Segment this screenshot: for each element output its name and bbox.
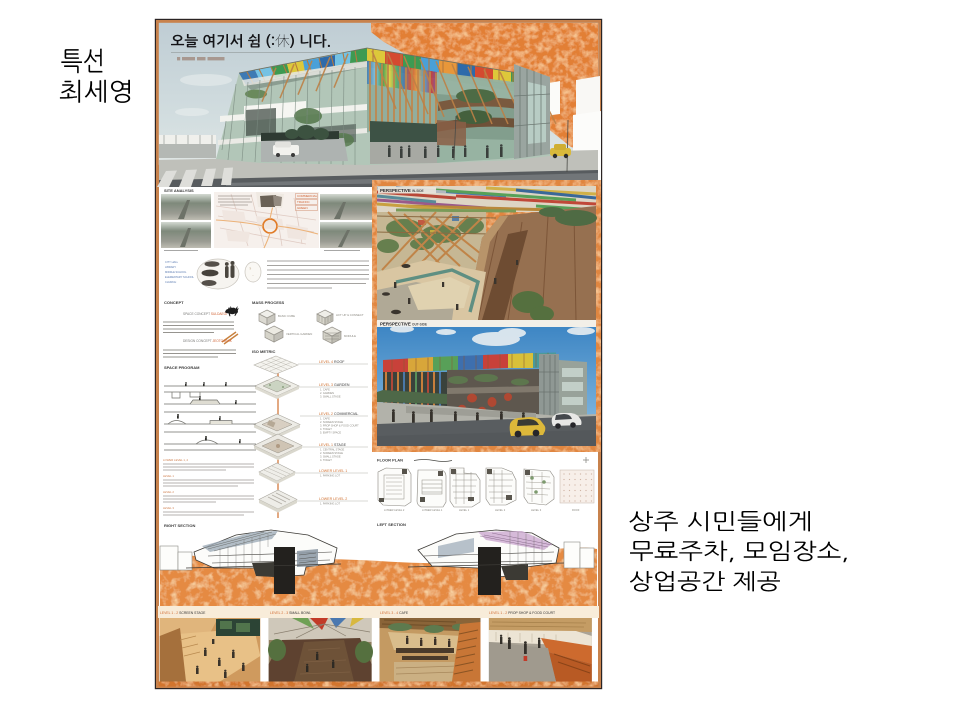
svg-text:4. TOILET: 4. TOILET	[320, 427, 332, 431]
svg-text:LEVEL 3: LEVEL 3	[163, 506, 174, 510]
svg-text:LEVEL 3: LEVEL 3	[531, 508, 542, 512]
svg-text:3. SMALL STAGE: 3. SMALL STAGE	[320, 395, 341, 399]
svg-text:2. GARDEN: 2. GARDEN	[320, 391, 334, 395]
svg-text:COMMERCIAL: COMMERCIAL	[297, 194, 318, 198]
svg-text:SPACE PROGRAM: SPACE PROGRAM	[164, 365, 200, 370]
svg-text:DESIGN CONCEPT JEOTGARAK: DESIGN CONCEPT JEOTGARAK	[183, 339, 233, 343]
svg-text:MIDDLE SCHOOL: MIDDLE SCHOOL	[165, 270, 187, 274]
svg-text:..: ..	[252, 272, 254, 277]
svg-text:LEVEL 2 - 3 SMALL BOWL: LEVEL 2 - 3 SMALL BOWL	[270, 611, 311, 615]
svg-text:LEFT SECTION: LEFT SECTION	[377, 522, 406, 527]
svg-text:2. SCREEN STAGE: 2. SCREEN STAGE	[320, 420, 343, 424]
svg-text:3. SMALL STAGE: 3. SMALL STAGE	[320, 455, 341, 459]
svg-text:VERTICAL GARDEN: VERTICAL GARDEN	[286, 332, 312, 336]
svg-text:LEVEL 1 - 2 PROP SHOP & FOOD C: LEVEL 1 - 2 PROP SHOP & FOOD COURT	[489, 611, 555, 615]
svg-text:LEVEL 1 STAGE: LEVEL 1 STAGE	[319, 443, 347, 447]
svg-text:BASIC CUBE: BASIC CUBE	[278, 314, 295, 318]
svg-text:ELEMENTARY SCHOOL: ELEMENTARY SCHOOL	[165, 275, 195, 279]
svg-text:LOWER LEVEL 1, 2: LOWER LEVEL 1, 2	[163, 458, 189, 462]
svg-text:SPACE CONCEPT SULDAEGI: SPACE CONCEPT SULDAEGI	[183, 312, 227, 316]
svg-text:LIBRARY: LIBRARY	[165, 265, 176, 269]
svg-text:LEVEL 3 - 4 CAFE: LEVEL 3 - 4 CAFE	[380, 611, 409, 615]
svg-text:4. TOILET: 4. TOILET	[320, 458, 332, 462]
svg-text:TRAFFIC: TRAFFIC	[297, 200, 310, 204]
svg-text:1. CENTRAL STAGE: 1. CENTRAL STAGE	[320, 448, 344, 452]
svg-text:1. PARKING LOT: 1. PARKING LOT	[320, 502, 341, 506]
svg-text:LIFT UP & CONNECT: LIFT UP & CONNECT	[336, 313, 364, 317]
svg-text:LOWER LEVEL 1: LOWER LEVEL 1	[319, 469, 347, 473]
svg-text:PERSPECTIVE IN-SIDE: PERSPECTIVE IN-SIDE	[380, 188, 424, 193]
svg-text:LEVEL 1: LEVEL 1	[459, 508, 470, 512]
svg-text:ROOF: ROOF	[572, 508, 580, 512]
svg-text:LEVEL 2: LEVEL 2	[163, 490, 174, 494]
svg-text:1. CAFE: 1. CAFE	[320, 388, 330, 392]
svg-text:LEVEL 4 ROOF: LEVEL 4 ROOF	[319, 360, 345, 364]
svg-text:LEVEL 2 COMMERCIAL: LEVEL 2 COMMERCIAL	[319, 412, 358, 416]
svg-text:GREEN: GREEN	[297, 206, 308, 210]
svg-text:FLOOR PLAN: FLOOR PLAN	[377, 458, 403, 463]
svg-text:5. EMPTY SPACE: 5. EMPTY SPACE	[320, 431, 341, 435]
svg-text:2. SCREEN STAGE: 2. SCREEN STAGE	[320, 451, 343, 455]
svg-text:LEVEL 1: LEVEL 1	[163, 474, 174, 478]
svg-text:LOWER LEVEL 1: LOWER LEVEL 1	[422, 508, 443, 512]
svg-text:SITE ANALYSIS: SITE ANALYSIS	[164, 188, 194, 193]
svg-text:LEVEL 1 - 2 SCREEN STAGE: LEVEL 1 - 2 SCREEN STAGE	[160, 611, 206, 615]
svg-text:ISO METRIC: ISO METRIC	[252, 349, 275, 354]
svg-text:PERSPECTIVE OUT-SIDE: PERSPECTIVE OUT-SIDE	[380, 322, 427, 327]
svg-text:CITY HALL: CITY HALL	[165, 260, 179, 264]
svg-text:LOWER LEVEL 2: LOWER LEVEL 2	[384, 508, 405, 512]
svg-text:3. PROP SHOP & FOOD COURT: 3. PROP SHOP & FOOD COURT	[320, 424, 359, 428]
svg-text:CHURCH: CHURCH	[165, 280, 176, 284]
svg-text:LOWER LEVEL 2: LOWER LEVEL 2	[319, 497, 347, 501]
svg-text:MODULE: MODULE	[344, 334, 356, 338]
svg-text:1. PARKING LOT: 1. PARKING LOT	[320, 474, 341, 478]
svg-text:RIGHT SECTION: RIGHT SECTION	[164, 523, 195, 528]
svg-text:MASS PROCESS: MASS PROCESS	[252, 300, 285, 305]
svg-text:LEVEL 3 GARDEN: LEVEL 3 GARDEN	[319, 383, 350, 387]
svg-text:1. CAFE: 1. CAFE	[320, 417, 330, 421]
svg-text:LEVEL 2: LEVEL 2	[495, 508, 506, 512]
svg-text:CONCEPT: CONCEPT	[164, 300, 184, 305]
